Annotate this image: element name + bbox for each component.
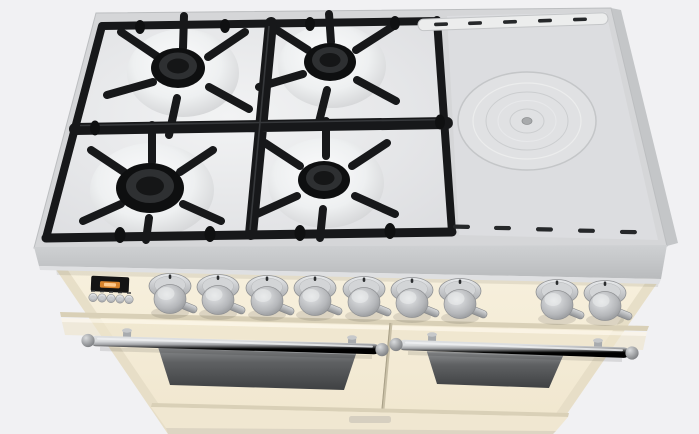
griddle-plate-rings: [458, 72, 596, 170]
burner-cap-front-right: [298, 161, 350, 199]
left-post-cap-1: [122, 328, 132, 332]
burner-cap-front-left: [116, 163, 184, 213]
cooktop: [34, 8, 678, 284]
panel-button: [89, 293, 97, 301]
panel-button: [125, 295, 133, 303]
brand-badge: [349, 416, 391, 423]
burner-cap-rear-left: [151, 48, 205, 88]
burner-cap-rear-right: [304, 43, 356, 81]
render-canvas: [0, 0, 699, 434]
panel-button: [107, 294, 115, 302]
right-post-cap-1: [427, 332, 437, 336]
left-post-cap-2: [347, 335, 357, 339]
panel-button: [116, 295, 124, 303]
right-rail-ball-right: [625, 346, 638, 359]
right-post-cap-2: [593, 338, 603, 342]
left-rail-ball-right: [375, 343, 388, 356]
panel-button: [98, 294, 106, 302]
left-rail-ball-left: [81, 334, 94, 347]
range-cooker-render: Top-front view render of a freestanding …: [0, 0, 699, 434]
right-rail-ball-left: [389, 338, 402, 351]
display-glow-bright: [104, 283, 116, 287]
control-display-cluster: [89, 276, 133, 304]
plate-center-cap: [522, 118, 532, 125]
